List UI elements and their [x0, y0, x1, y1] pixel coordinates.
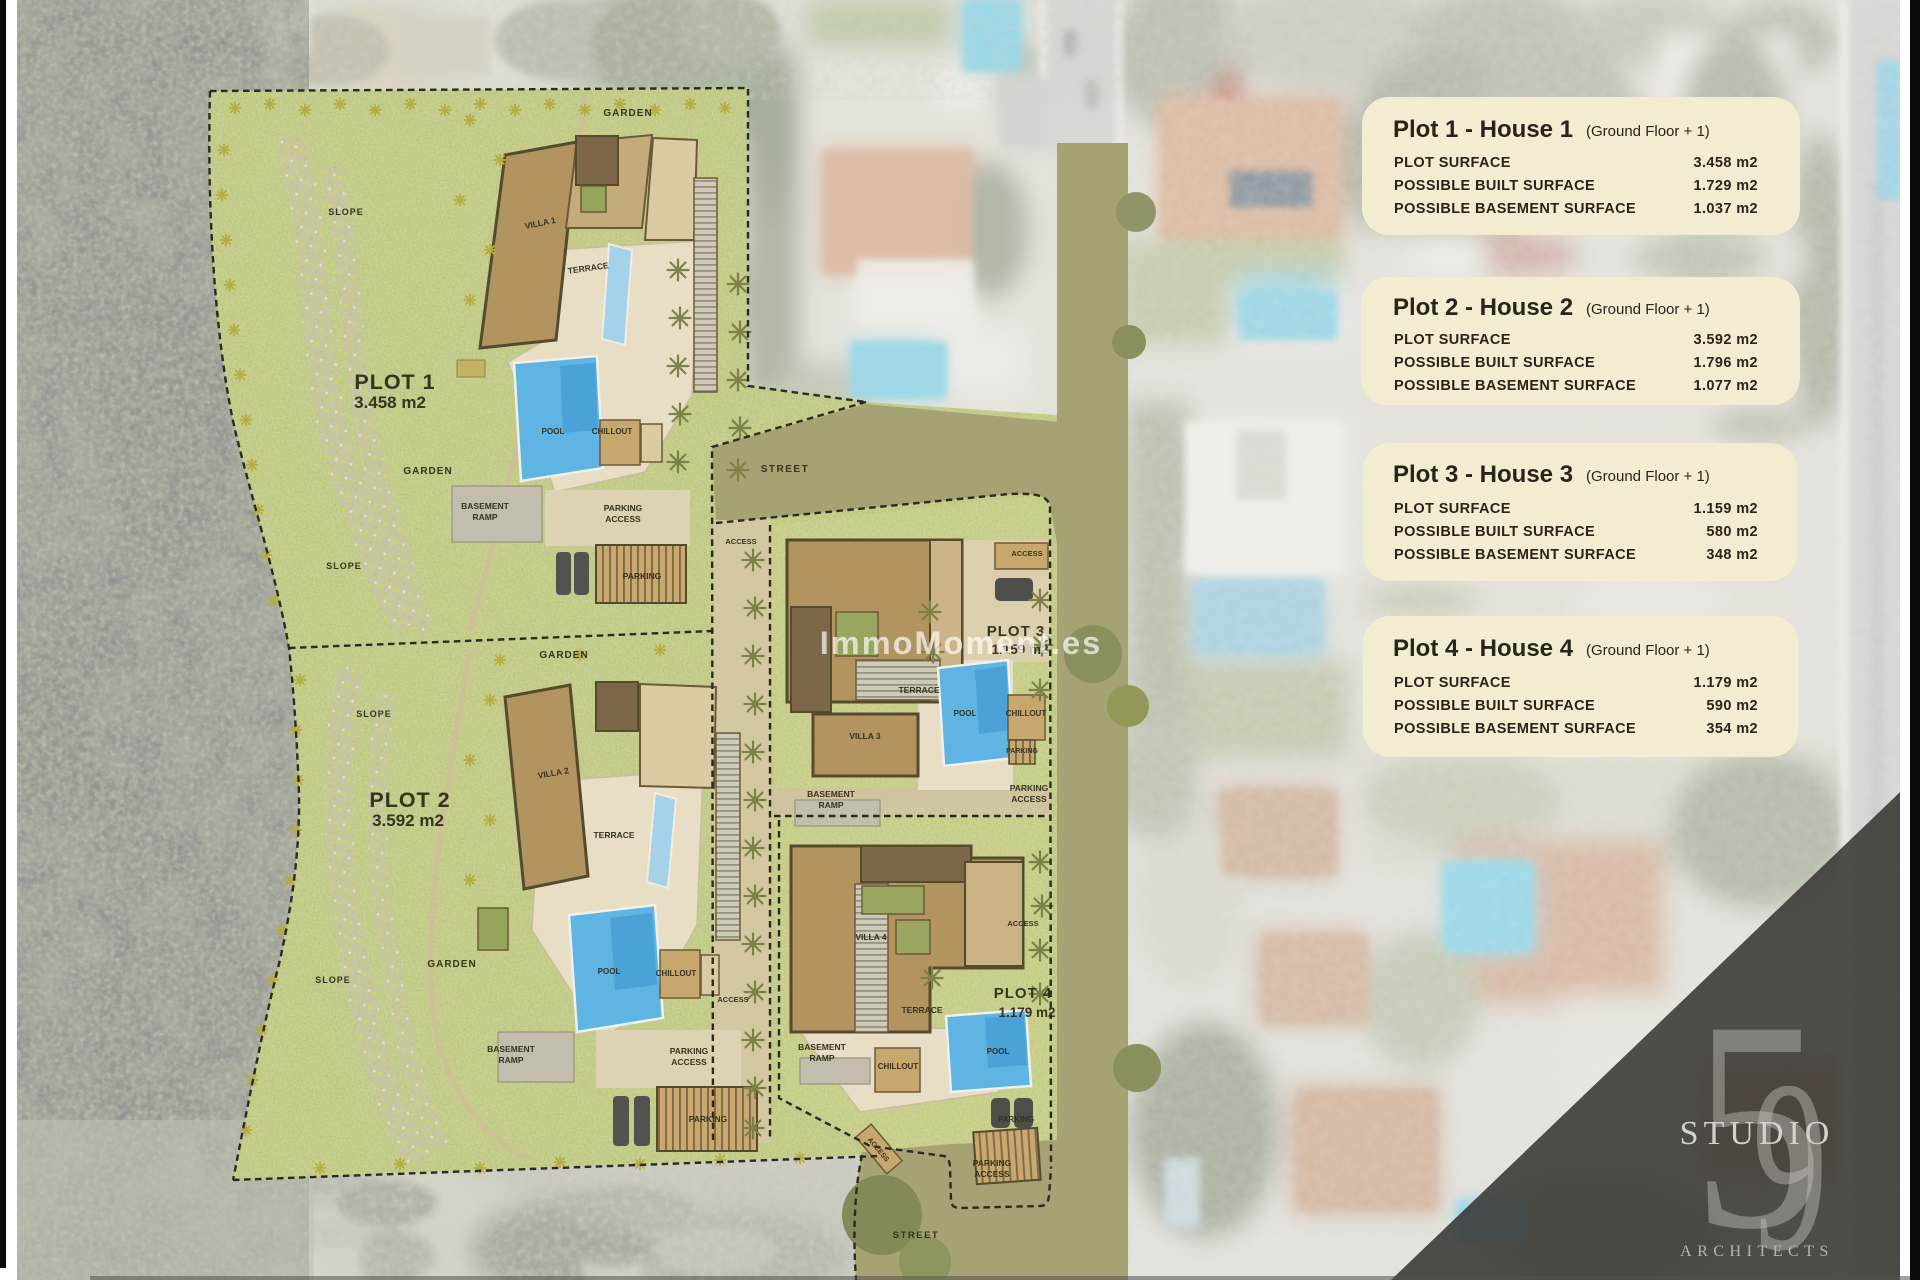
svg-text:POSSIBLE BASEMENT SURFACE: POSSIBLE BASEMENT SURFACE: [1394, 201, 1636, 217]
svg-text:STREET: STREET: [761, 464, 809, 475]
svg-text:1.179 m2: 1.179 m2: [998, 1005, 1055, 1020]
svg-text:ARCHITECTS: ARCHITECTS: [1680, 1243, 1834, 1260]
svg-text:POSSIBLE BASEMENT SURFACE: POSSIBLE BASEMENT SURFACE: [1394, 378, 1636, 394]
svg-text:VILLA 4: VILLA 4: [855, 932, 887, 942]
svg-text:CHILLOUT: CHILLOUT: [878, 1062, 919, 1071]
svg-text:3.458 m2: 3.458 m2: [1694, 155, 1758, 171]
svg-text:PARKING: PARKING: [1010, 783, 1049, 793]
svg-text:ACCESS: ACCESS: [671, 1057, 707, 1067]
svg-text:ACCESS: ACCESS: [974, 1169, 1010, 1179]
svg-text:(Ground Floor + 1): (Ground Floor + 1): [1586, 301, 1710, 318]
svg-text:PARKING: PARKING: [689, 1114, 728, 1124]
svg-text:CHILLOUT: CHILLOUT: [1006, 709, 1047, 718]
svg-text:Plot 3 - House 3: Plot 3 - House 3: [1393, 461, 1573, 488]
svg-text:1.729 m2: 1.729 m2: [1694, 178, 1758, 194]
svg-text:POOL: POOL: [954, 709, 977, 718]
svg-text:PARKING: PARKING: [973, 1158, 1012, 1168]
svg-text:PARKING: PARKING: [1006, 748, 1038, 755]
svg-text:PLOT 1: PLOT 1: [354, 370, 435, 394]
svg-text:POSSIBLE BASEMENT SURFACE: POSSIBLE BASEMENT SURFACE: [1394, 547, 1636, 563]
svg-text:PLOT SURFACE: PLOT SURFACE: [1394, 155, 1511, 171]
svg-text:POSSIBLE BUILT SURFACE: POSSIBLE BUILT SURFACE: [1394, 524, 1595, 540]
svg-text:BASEMENT: BASEMENT: [461, 501, 510, 511]
svg-text:RAMP: RAMP: [809, 1053, 834, 1063]
svg-text:ACCESS: ACCESS: [725, 537, 756, 546]
svg-text:1.159 m2: 1.159 m2: [1694, 501, 1758, 517]
svg-text:1.179 m2: 1.179 m2: [1694, 675, 1758, 691]
svg-text:PLOT SURFACE: PLOT SURFACE: [1394, 332, 1511, 348]
svg-text:RAMP: RAMP: [818, 800, 843, 810]
svg-text:PARKING: PARKING: [998, 1115, 1034, 1124]
svg-text:ACCESS: ACCESS: [1011, 794, 1047, 804]
svg-text:POSSIBLE BUILT SURFACE: POSSIBLE BUILT SURFACE: [1394, 355, 1595, 371]
svg-text:SLOPE: SLOPE: [315, 975, 351, 985]
svg-text:BASEMENT: BASEMENT: [807, 789, 856, 799]
svg-text:1.077 m2: 1.077 m2: [1694, 378, 1758, 394]
svg-text:PLOT SURFACE: PLOT SURFACE: [1394, 501, 1511, 517]
svg-text:POSSIBLE BUILT SURFACE: POSSIBLE BUILT SURFACE: [1394, 698, 1595, 714]
svg-text:POOL: POOL: [598, 967, 621, 976]
svg-text:ImmoMoment.es: ImmoMoment.es: [820, 625, 1102, 661]
svg-text:CHILLOUT: CHILLOUT: [656, 969, 697, 978]
svg-text:590 m2: 590 m2: [1706, 698, 1758, 714]
svg-text:PARKING: PARKING: [604, 503, 643, 513]
svg-text:POOL: POOL: [542, 427, 565, 436]
svg-text:(Ground Floor + 1): (Ground Floor + 1): [1586, 642, 1710, 659]
svg-text:ACCESS: ACCESS: [1007, 919, 1038, 928]
svg-text:BASEMENT: BASEMENT: [798, 1042, 847, 1052]
svg-text:ACCESS: ACCESS: [1011, 549, 1042, 558]
svg-text:POOL: POOL: [987, 1047, 1010, 1056]
svg-text:STUDIO: STUDIO: [1680, 1115, 1835, 1152]
svg-text:Plot 4 - House 4: Plot 4 - House 4: [1393, 635, 1574, 662]
svg-text:TERRACE: TERRACE: [898, 685, 939, 695]
svg-text:TERRACE: TERRACE: [593, 830, 634, 840]
svg-text:(Ground Floor + 1): (Ground Floor + 1): [1586, 468, 1710, 485]
svg-text:Plot 1 - House 1: Plot 1 - House 1: [1393, 116, 1573, 143]
svg-text:PLOT 2: PLOT 2: [369, 788, 450, 812]
svg-text:Plot 2 - House 2: Plot 2 - House 2: [1393, 294, 1573, 321]
svg-text:VILLA 3: VILLA 3: [849, 731, 881, 741]
svg-text:PARKING: PARKING: [623, 571, 662, 581]
svg-text:ACCESS: ACCESS: [717, 995, 748, 1004]
svg-text:3.592 m2: 3.592 m2: [1694, 332, 1758, 348]
svg-text:354 m2: 354 m2: [1706, 721, 1758, 737]
svg-text:RAMP: RAMP: [498, 1055, 523, 1065]
svg-text:GARDEN: GARDEN: [603, 108, 652, 119]
svg-text:RAMP: RAMP: [472, 512, 497, 522]
svg-text:GARDEN: GARDEN: [427, 959, 476, 970]
svg-text:GARDEN: GARDEN: [403, 466, 452, 477]
svg-text:GARDEN: GARDEN: [539, 650, 588, 661]
svg-text:STREET: STREET: [893, 1230, 939, 1241]
svg-text:PLOT 4: PLOT 4: [994, 985, 1053, 1002]
svg-text:3.592 m2: 3.592 m2: [372, 811, 444, 830]
svg-text:580 m2: 580 m2: [1706, 524, 1758, 540]
svg-text:348 m2: 348 m2: [1706, 547, 1758, 563]
svg-text:3.458 m2: 3.458 m2: [354, 393, 426, 412]
svg-text:SLOPE: SLOPE: [326, 561, 362, 571]
svg-text:SLOPE: SLOPE: [356, 709, 392, 719]
svg-text:CHILLOUT: CHILLOUT: [592, 427, 633, 436]
svg-text:POSSIBLE BUILT SURFACE: POSSIBLE BUILT SURFACE: [1394, 178, 1595, 194]
svg-text:(Ground Floor + 1): (Ground Floor + 1): [1586, 123, 1710, 140]
svg-text:TERRACE: TERRACE: [901, 1005, 942, 1015]
svg-text:1.037 m2: 1.037 m2: [1694, 201, 1758, 217]
svg-text:SLOPE: SLOPE: [328, 207, 364, 217]
svg-text:POSSIBLE BASEMENT SURFACE: POSSIBLE BASEMENT SURFACE: [1394, 721, 1636, 737]
svg-text:1.796 m2: 1.796 m2: [1694, 355, 1758, 371]
svg-text:PARKING: PARKING: [670, 1046, 709, 1056]
svg-text:PLOT SURFACE: PLOT SURFACE: [1394, 675, 1511, 691]
svg-text:ACCESS: ACCESS: [605, 514, 641, 524]
svg-text:BASEMENT: BASEMENT: [487, 1044, 536, 1054]
